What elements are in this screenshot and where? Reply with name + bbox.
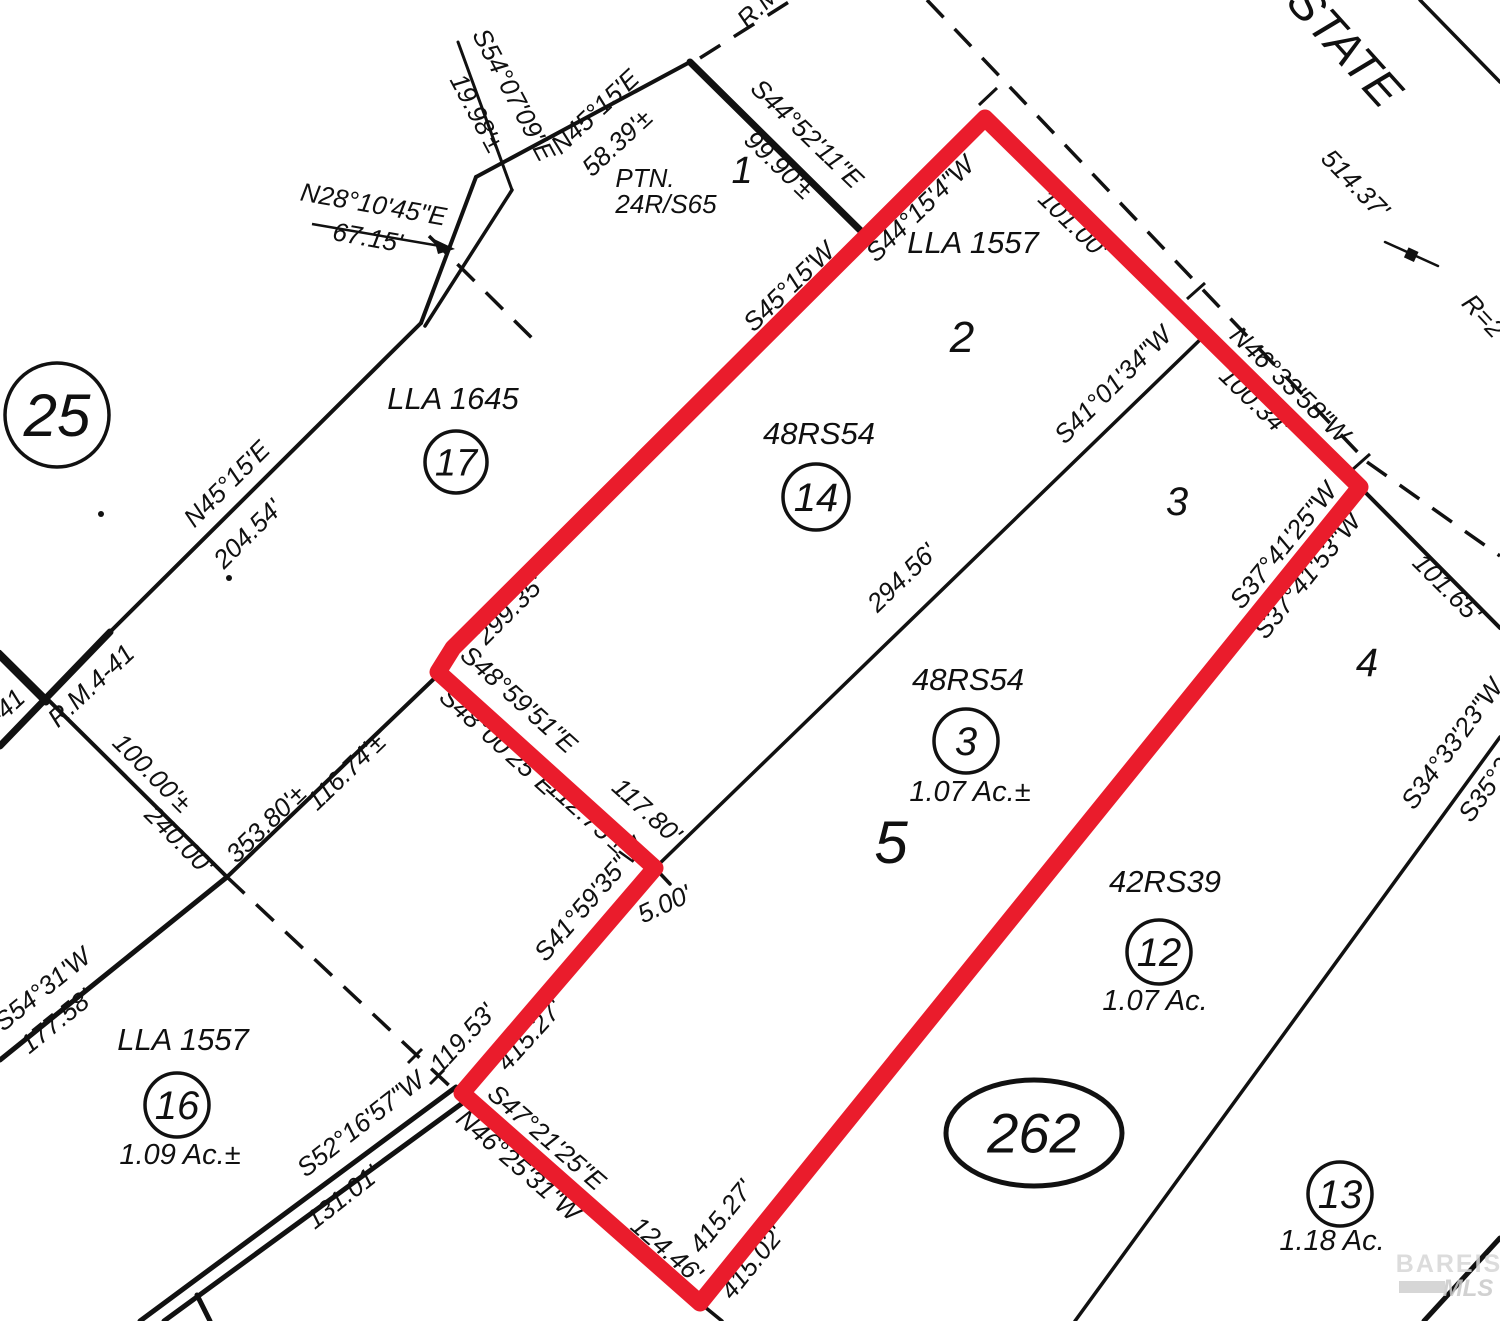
label-48rs54: 48RS54 <box>763 416 875 451</box>
watermark-bar <box>1399 1281 1445 1293</box>
label-lla-1557: LLA 1557 <box>907 225 1040 260</box>
station-tick <box>979 88 997 105</box>
plat-map-page: S54°07'09"E19.98'±N28°10'45"E67.15'N45°1… <box>0 0 1500 1321</box>
parcel-circle-number-17: 17 <box>435 442 479 484</box>
plat-map-svg: S54°07'09"E19.98'±N28°10'45"E67.15'N45°1… <box>0 0 1500 1321</box>
boundary-lines <box>0 0 1500 1321</box>
label-lla-1645: LLA 1645 <box>387 381 519 416</box>
map-dot <box>226 575 232 581</box>
label-514-37: 514.37' <box>1315 143 1396 225</box>
dashed-boundary-line <box>1367 462 1500 556</box>
parcel-circle-number-13: 13 <box>1318 1173 1363 1217</box>
label-42rs39: 42RS39 <box>1109 864 1221 899</box>
label-s41-01-34-w: S41°01'34"W <box>1048 318 1179 449</box>
label-s35-2: S35°2 <box>1452 752 1500 828</box>
parcel-circle-number-12: 12 <box>1137 931 1182 975</box>
boundary-line <box>1420 0 1500 82</box>
parcel-circle-number-25: 25 <box>23 382 91 449</box>
parcel-circle-number-14: 14 <box>794 476 839 520</box>
label-294-56: 294.56' <box>860 537 943 619</box>
boundary-line <box>110 323 421 632</box>
road-stub-line <box>197 1295 210 1321</box>
map-text-labels: S54°07'09"E19.98'±N28°10'45"E67.15'N45°1… <box>0 0 1500 1305</box>
dashed-boundary-line <box>227 877 456 1092</box>
label-r-2: R=2 <box>1456 288 1500 344</box>
label-24r-s65: 24R/S65 <box>614 189 717 219</box>
watermark-line2: MLS <box>1443 1275 1494 1302</box>
parcel-circle-number-16: 16 <box>155 1084 200 1128</box>
label-1-07-ac: 1.07 Ac.± <box>909 776 1030 808</box>
label-1-09-ac: 1.09 Ac.± <box>119 1139 240 1171</box>
label-lla-1557: LLA 1557 <box>117 1022 250 1057</box>
label-48rs54: 48RS54 <box>912 662 1024 697</box>
label-101-65: 101.65' <box>1407 547 1489 629</box>
label-4: 4 <box>1356 641 1378 685</box>
label-1-18-ac: 1.18 Ac. <box>1279 1225 1384 1257</box>
map-dot <box>98 511 104 517</box>
highlight-outline <box>438 118 1360 1303</box>
label-353-80: 353.80'± <box>220 778 312 868</box>
label-5: 5 <box>874 809 908 876</box>
map-number-oval-text: 262 <box>986 1102 1080 1165</box>
label-state: STATE <box>1277 0 1414 118</box>
label-1-07-ac: 1.07 Ac. <box>1102 985 1207 1017</box>
monument-square-icon <box>1404 247 1419 262</box>
watermark-line1: BAREIS <box>1396 1250 1500 1278</box>
label-3: 3 <box>1166 480 1188 524</box>
parcel-circle-number-3: 3 <box>955 720 977 764</box>
label-2: 2 <box>949 313 974 362</box>
label-116-74: 116.74'± <box>301 727 391 816</box>
watermark: BAREIS MLS <box>1396 1250 1500 1302</box>
